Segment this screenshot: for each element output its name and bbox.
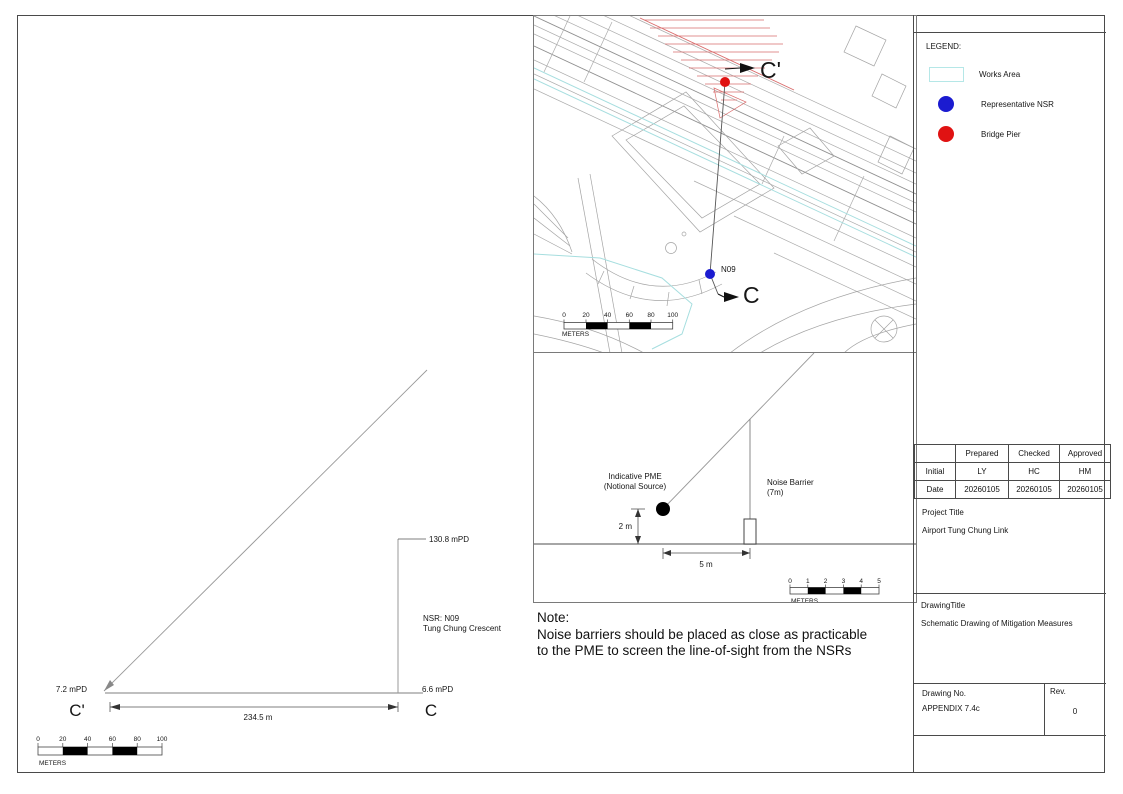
left-level-label: 7.2 mPD bbox=[56, 685, 87, 694]
section-sight-arrow bbox=[104, 680, 114, 691]
svg-text:100: 100 bbox=[157, 736, 168, 743]
project-title: Airport Tung Chung Link bbox=[922, 526, 1008, 535]
svg-text:60: 60 bbox=[626, 312, 634, 319]
pme-label-line1: Indicative PME bbox=[608, 472, 661, 481]
map-nsr-point-label: N09 bbox=[721, 265, 736, 274]
approval-cell: LY bbox=[956, 463, 1009, 481]
approval-cell: 20260105 bbox=[956, 481, 1009, 499]
approval-cell: 20260105 bbox=[1009, 481, 1060, 499]
section-nsr-label-line1: NSR: N09 bbox=[423, 614, 460, 623]
svg-text:100: 100 bbox=[667, 312, 678, 319]
note-line2: to the PME to screen the line-of-sight f… bbox=[537, 643, 917, 660]
map-marker-c: C bbox=[743, 282, 760, 308]
section-arrow-icon-end bbox=[724, 292, 739, 302]
barrier-label-line2: (7m) bbox=[767, 488, 784, 497]
drawing-title: Schematic Drawing of Mitigation Measures bbox=[921, 619, 1073, 628]
pme-source-dot bbox=[656, 502, 670, 516]
approval-cell: Approved bbox=[1060, 445, 1111, 463]
approval-cell: Checked bbox=[1009, 445, 1060, 463]
pme-label-line2: (Notional Source) bbox=[604, 482, 667, 491]
svg-text:80: 80 bbox=[134, 736, 142, 743]
distance-dimension bbox=[663, 548, 750, 559]
span-dimension bbox=[110, 702, 398, 712]
svg-text:80: 80 bbox=[647, 312, 655, 319]
detail-scalebar: 0 1 2 3 4 5 METERS bbox=[788, 578, 881, 603]
svg-text:20: 20 bbox=[59, 736, 67, 743]
approval-header-row: Prepared Checked Approved bbox=[915, 445, 1111, 463]
height-dim-arrow-down bbox=[635, 536, 641, 544]
legend-label-bridge-pier: Bridge Pier bbox=[981, 130, 1021, 139]
svg-text:60: 60 bbox=[109, 736, 117, 743]
panel-top-divider bbox=[914, 32, 1106, 33]
works-area-outline bbox=[534, 68, 916, 349]
span-dim-label: 234.5 m bbox=[244, 713, 273, 722]
noise-barrier-base bbox=[744, 519, 756, 544]
section-cut-line bbox=[710, 82, 725, 294]
note-block: Note: Noise barriers should be placed as… bbox=[537, 610, 917, 660]
height-dim-label: 2 m bbox=[619, 522, 633, 531]
section-sight-line bbox=[104, 370, 427, 691]
svg-text:METERS: METERS bbox=[39, 760, 67, 767]
site-plan-map: C' C N09 0 20 40 60 80 100 METERS bbox=[533, 15, 917, 354]
approval-cell: Prepared bbox=[956, 445, 1009, 463]
svg-text:2: 2 bbox=[824, 578, 828, 585]
svg-text:0: 0 bbox=[562, 312, 566, 319]
span-dim-arrow-right bbox=[388, 704, 398, 710]
title-block-panel: LEGEND: Works Area Representative NSR Br… bbox=[913, 15, 1106, 773]
svg-text:0: 0 bbox=[36, 736, 40, 743]
nsr-dot-n09 bbox=[705, 269, 715, 279]
approval-cell: Date bbox=[915, 481, 956, 499]
approval-cell: HM bbox=[1060, 463, 1111, 481]
works-area-swatch bbox=[929, 67, 964, 82]
representative-nsr-icon bbox=[938, 96, 954, 112]
drawing-no: APPENDIX 7.4c bbox=[922, 704, 980, 713]
span-dim-arrow-left bbox=[110, 704, 120, 710]
approval-cell: HC bbox=[1009, 463, 1060, 481]
cross-section-drawing: 130.8 mPD 7.2 mPD 6.6 mPD NSR: N09 Tung … bbox=[20, 360, 525, 775]
map-marker-c-prime: C' bbox=[760, 57, 781, 83]
distance-dim-label: 5 m bbox=[699, 560, 713, 569]
drawing-no-divider-top bbox=[914, 683, 1106, 684]
svg-text:METERS: METERS bbox=[562, 331, 590, 338]
height-dim-arrow-up bbox=[635, 509, 641, 517]
map-buildings bbox=[534, 26, 916, 353]
svg-text:40: 40 bbox=[84, 736, 92, 743]
drawing-sheet: C' C N09 0 20 40 60 80 100 METERS bbox=[0, 0, 1123, 794]
drawing-no-label: Drawing No. bbox=[922, 689, 966, 698]
project-title-label: Project Title bbox=[922, 508, 964, 517]
svg-text:0: 0 bbox=[788, 578, 792, 585]
svg-text:3: 3 bbox=[842, 578, 846, 585]
approval-cell: Initial bbox=[915, 463, 956, 481]
barrier-label-line1: Noise Barrier bbox=[767, 478, 814, 487]
drawing-title-divider bbox=[914, 593, 1106, 594]
approval-cell bbox=[915, 445, 956, 463]
note-heading: Note: bbox=[537, 610, 917, 627]
distance-dim-arrow-right bbox=[742, 550, 750, 556]
mitigation-detail-drawing: 2 m 5 m Indicative PME (Notional Source)… bbox=[533, 352, 917, 603]
distance-dim-arrow-left bbox=[663, 550, 671, 556]
rev-label: Rev. bbox=[1050, 687, 1066, 696]
section-scalebar: 0 20 40 60 80 100 METERS bbox=[36, 736, 168, 767]
svg-text:1: 1 bbox=[806, 578, 810, 585]
section-marker-c: C bbox=[425, 701, 437, 720]
drawing-title-label: DrawingTitle bbox=[921, 601, 965, 610]
section-arrow-tail-end bbox=[718, 294, 724, 297]
right-level-label: 6.6 mPD bbox=[422, 685, 453, 694]
svg-text:METERS: METERS bbox=[791, 598, 819, 603]
approval-date-row: Date 20260105 20260105 20260105 bbox=[915, 481, 1111, 499]
svg-text:4: 4 bbox=[859, 578, 863, 585]
legend-label-works-area: Works Area bbox=[979, 70, 1020, 79]
bridge-pier-icon bbox=[938, 126, 954, 142]
approval-initial-row: Initial LY HC HM bbox=[915, 463, 1111, 481]
bridge-pier-dot bbox=[720, 77, 730, 87]
rev-value: 0 bbox=[1044, 707, 1106, 716]
svg-text:20: 20 bbox=[582, 312, 590, 319]
drawing-no-divider-bottom bbox=[914, 735, 1106, 736]
section-marker-c-prime: C' bbox=[69, 701, 85, 720]
top-level-label: 130.8 mPD bbox=[429, 535, 469, 544]
approval-table: Prepared Checked Approved Initial LY HC … bbox=[914, 444, 1111, 499]
note-line1: Noise barriers should be placed as close… bbox=[537, 627, 917, 644]
svg-text:40: 40 bbox=[604, 312, 612, 319]
approval-cell: 20260105 bbox=[1060, 481, 1111, 499]
svg-text:5: 5 bbox=[877, 578, 881, 585]
section-nsr-label-line2: Tung Chung Crescent bbox=[423, 624, 502, 633]
section-arrow-icon-start bbox=[740, 63, 755, 73]
map-scalebar: 0 20 40 60 80 100 METERS bbox=[562, 312, 679, 338]
legend-title: LEGEND: bbox=[926, 42, 961, 51]
legend-label-representative-nsr: Representative NSR bbox=[981, 100, 1054, 109]
